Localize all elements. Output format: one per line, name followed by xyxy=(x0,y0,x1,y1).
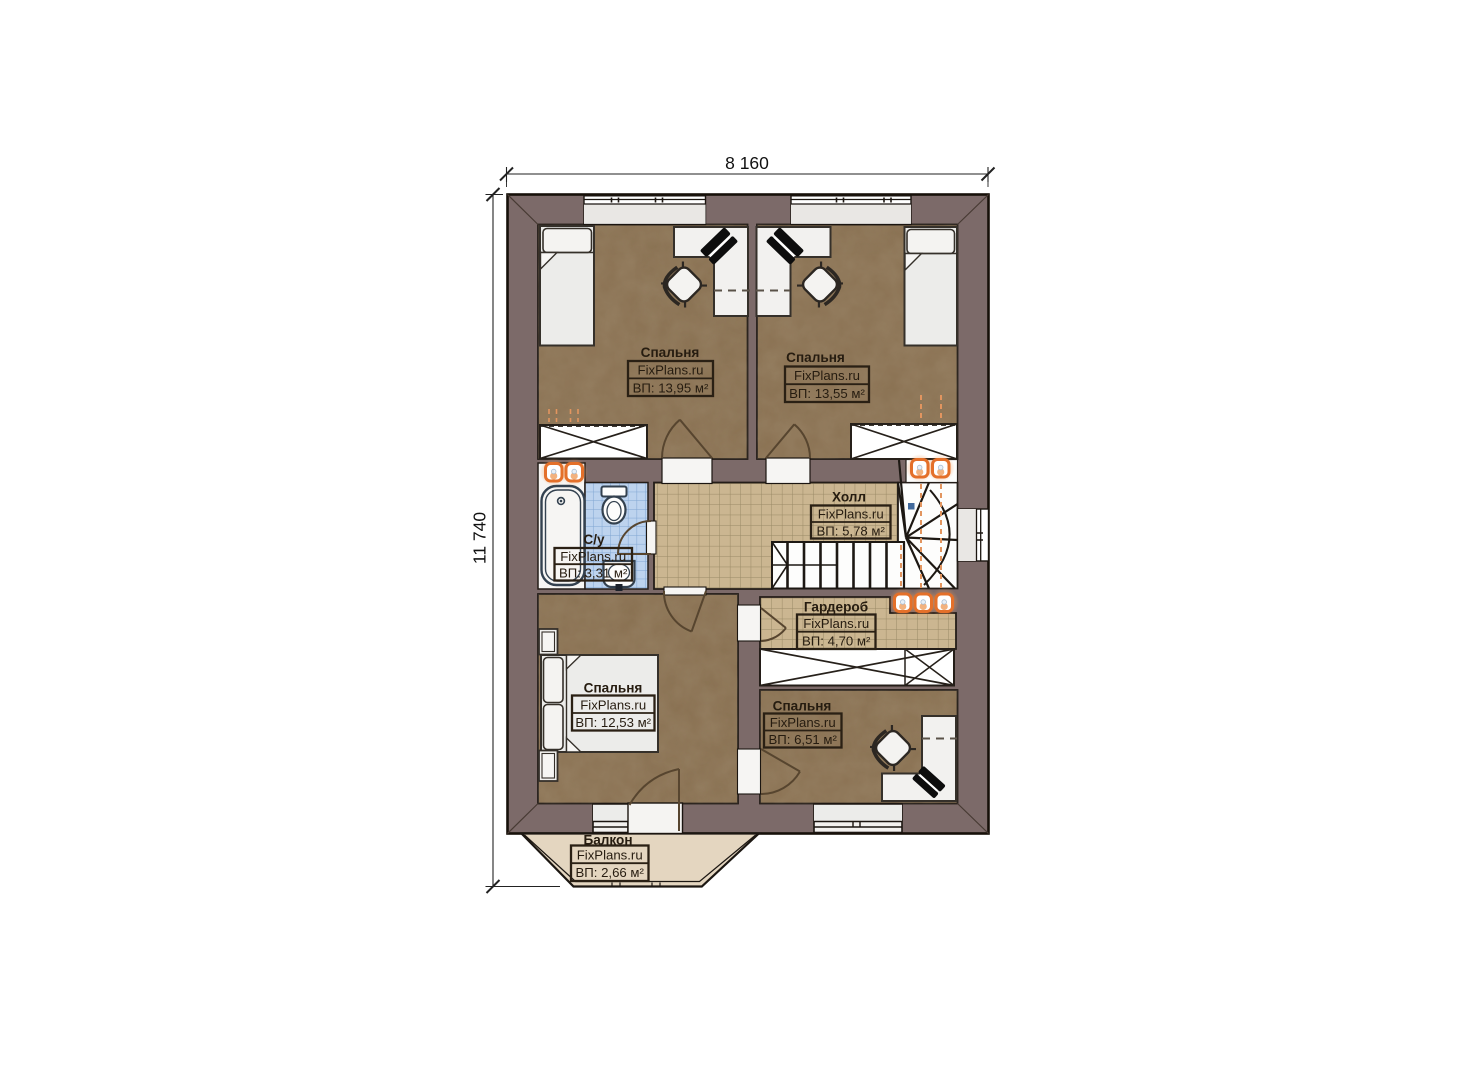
svg-text:Гардероб: Гардероб xyxy=(804,600,868,615)
svg-text:FixPlans.ru: FixPlans.ru xyxy=(794,368,860,383)
svg-text:ВП: 13,55 м²: ВП: 13,55 м² xyxy=(789,386,865,401)
svg-text:FixPlans.ru: FixPlans.ru xyxy=(560,549,626,564)
svg-text:Спальня: Спальня xyxy=(773,699,832,714)
svg-text:Спальня: Спальня xyxy=(786,350,845,365)
svg-text:8 160: 8 160 xyxy=(725,153,769,173)
svg-text:С/у: С/у xyxy=(583,532,605,547)
svg-text:FixPlans.ru: FixPlans.ru xyxy=(770,715,836,730)
svg-text:ВП: 5,78 м²: ВП: 5,78 м² xyxy=(816,523,885,538)
svg-text:Холл: Холл xyxy=(832,490,866,505)
svg-text:ВП: 6,51 м²: ВП: 6,51 м² xyxy=(768,732,837,747)
svg-text:FixPlans.ru: FixPlans.ru xyxy=(580,697,646,712)
svg-text:FixPlans.ru: FixPlans.ru xyxy=(577,848,643,863)
svg-text:FixPlans.ru: FixPlans.ru xyxy=(638,363,704,378)
svg-text:11 740: 11 740 xyxy=(470,512,490,564)
svg-text:ВП: 2,66 м²: ВП: 2,66 м² xyxy=(575,865,644,880)
svg-text:ВП: 3,31 м²: ВП: 3,31 м² xyxy=(559,566,628,581)
svg-text:ВП: 12,53 м²: ВП: 12,53 м² xyxy=(575,715,651,730)
svg-text:ВП: 13,95 м²: ВП: 13,95 м² xyxy=(633,381,709,396)
svg-text:Спальня: Спальня xyxy=(641,345,700,360)
svg-text:ВП: 4,70 м²: ВП: 4,70 м² xyxy=(802,634,871,649)
svg-text:FixPlans.ru: FixPlans.ru xyxy=(803,616,869,631)
svg-text:Балкон: Балкон xyxy=(583,833,632,848)
svg-text:Спальня: Спальня xyxy=(584,681,643,696)
svg-text:FixPlans.ru: FixPlans.ru xyxy=(818,506,884,521)
